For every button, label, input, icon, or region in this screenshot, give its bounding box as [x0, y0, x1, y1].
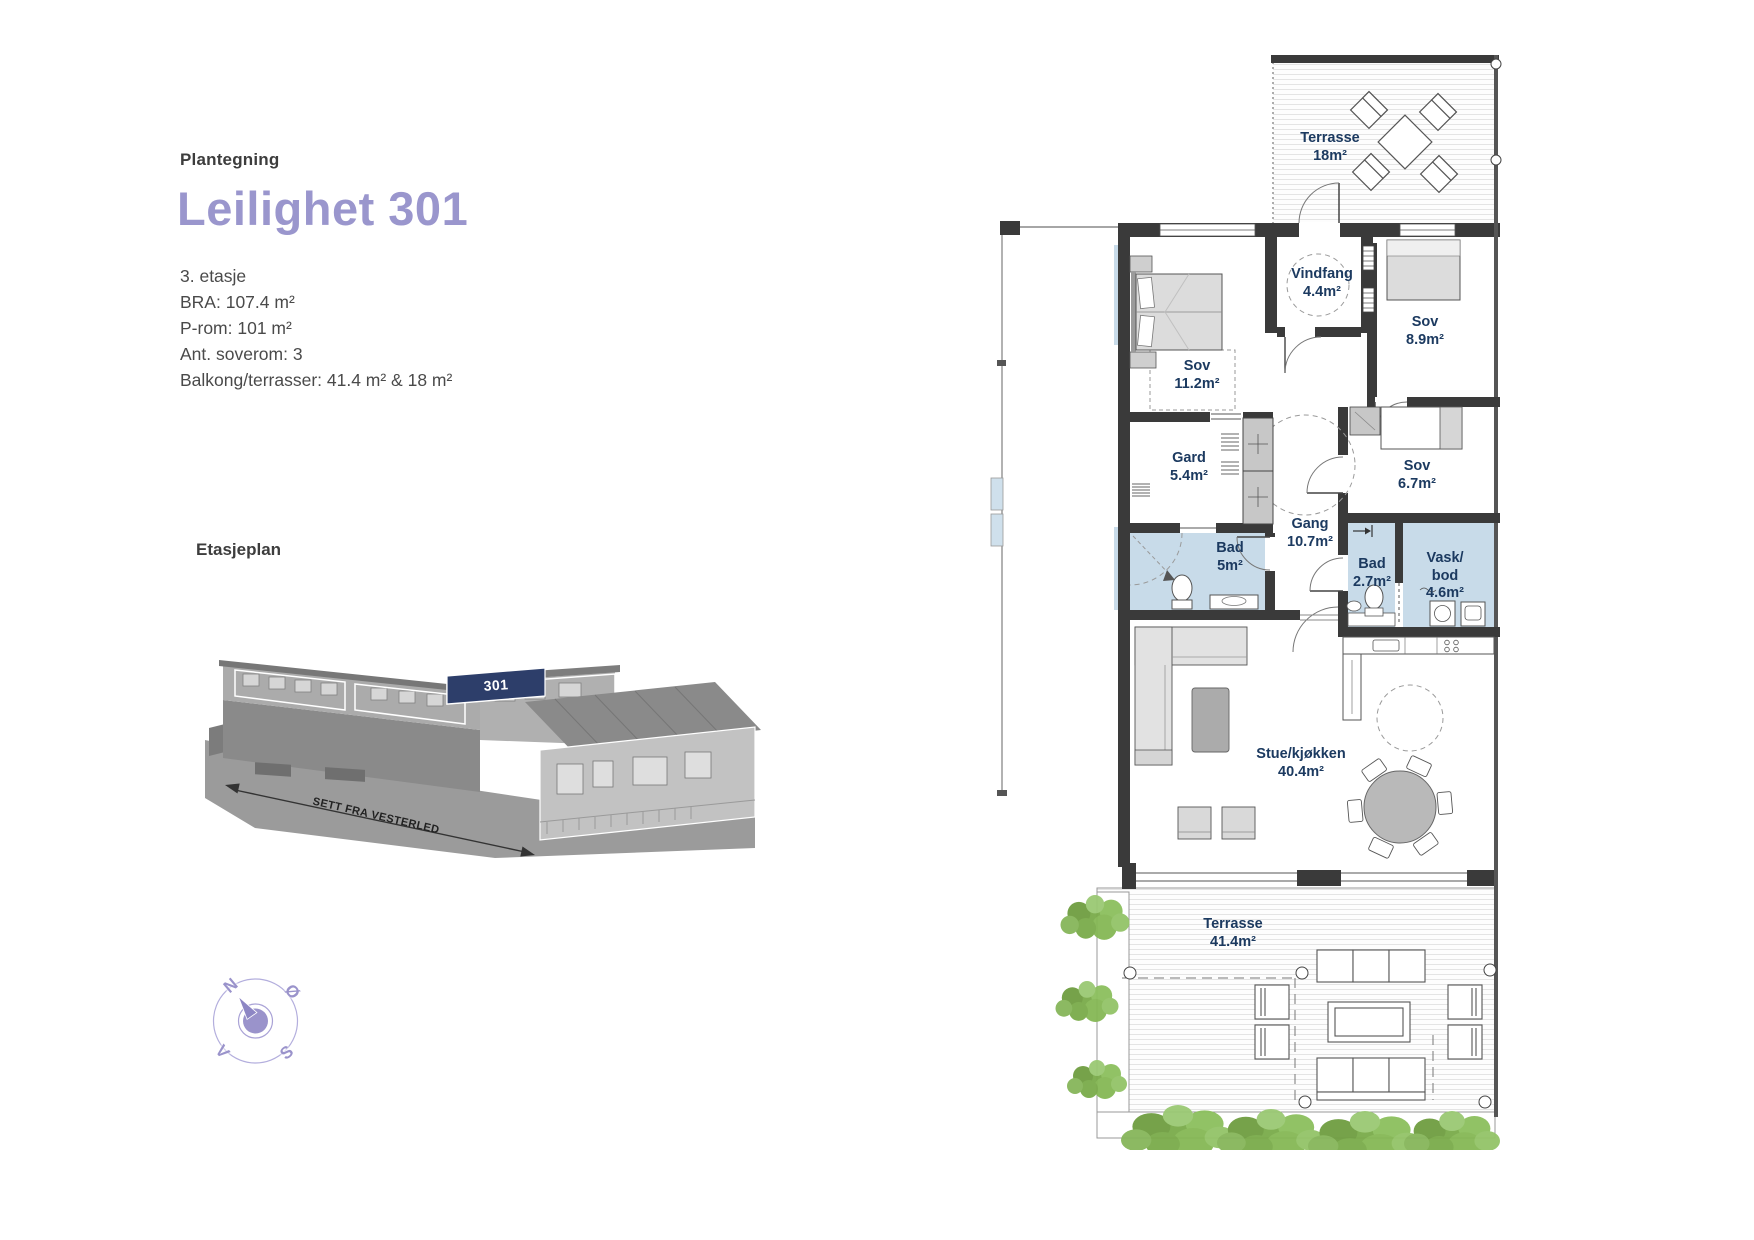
detail-bedrooms: Ant. soverom: 3	[180, 341, 452, 367]
terrace-bottom-deck	[1097, 888, 1495, 1138]
room-label-sov-67: Sov6.7m²	[1398, 458, 1436, 493]
detail-prom: P-rom: 101 m²	[180, 315, 452, 341]
detail-floor: 3. etasje	[180, 263, 452, 289]
page-kicker: Plantegning	[180, 150, 279, 170]
floor-plan: Terrasse18m² Sov11.2m² Vindfang4.4m² Sov…	[975, 50, 1510, 1150]
building-illustration: 301 SETT FRA VESTERLED	[195, 640, 775, 880]
page: { "panel": { "kicker": "Plantegning", "t…	[0, 0, 1754, 1240]
room-label-terrasse-bottom: Terrasse41.4m²	[1203, 916, 1262, 951]
building-render	[195, 640, 775, 880]
room-label-bad-27: Bad2.7m²	[1353, 556, 1391, 591]
room-label-vindfang: Vindfang4.4m²	[1291, 266, 1353, 301]
room-label-sov-11: Sov11.2m²	[1174, 358, 1219, 393]
room-label-terrasse-top: Terrasse18m²	[1300, 130, 1359, 165]
compass-rose: N Ø S V	[203, 965, 313, 1075]
floorplan-heading: Etasjeplan	[196, 540, 281, 560]
apartment-details: 3. etasje BRA: 107.4 m² P-rom: 101 m² An…	[180, 263, 452, 393]
detail-terraces: Balkong/terrasser: 41.4 m² & 18 m²	[180, 367, 452, 393]
room-label-stue-kjokken: Stue/kjøkken40.4m²	[1256, 746, 1345, 781]
building-foreground-house	[525, 682, 761, 840]
page-title: Leilighet 301	[177, 181, 468, 236]
adjacent-structure-edge	[991, 221, 1118, 796]
unit-301-label: 301	[483, 676, 509, 694]
room-label-gang: Gang10.7m²	[1287, 516, 1333, 551]
detail-bra: BRA: 107.4 m²	[180, 289, 452, 315]
room-label-bad-5: Bad5m²	[1216, 540, 1243, 575]
room-label-vask-bod: Vask/ bod4.6m²	[1426, 550, 1464, 603]
room-label-sov-89: Sov8.9m²	[1406, 314, 1444, 349]
room-label-gard: Gard5.4m²	[1170, 450, 1208, 485]
